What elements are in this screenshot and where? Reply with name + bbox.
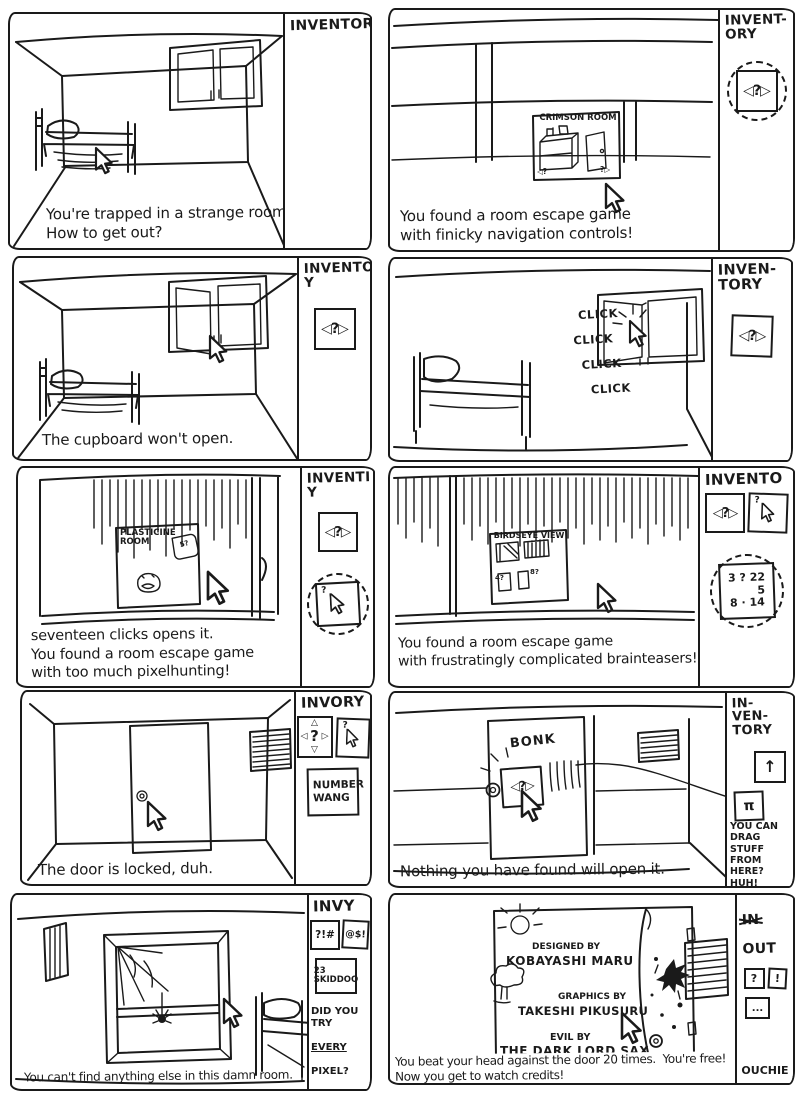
inventory-title: INVENTOR Y [302, 261, 372, 291]
click-text: CLICK CLICK CLICK CLICK [569, 294, 632, 411]
caption: The cupboard won't open. [42, 429, 233, 450]
dragged-item-label: ◁?▷ [504, 778, 541, 794]
screen-title: CRIMSON ROOM [536, 114, 620, 123]
inventory-item-pi[interactable]: π [733, 790, 764, 821]
vent [250, 729, 291, 771]
window-scene [12, 895, 311, 1091]
vent [638, 730, 679, 762]
caption: You're trapped in a strange room. How to… [46, 203, 291, 244]
inventory-sidebar: IN OUT ? ! ... OUCHIE [735, 895, 793, 1083]
inventory-title-in: IN [742, 913, 760, 928]
screen-mark-right: 8? [530, 569, 539, 577]
inventory-item-nav[interactable]: ◁?▷ [730, 314, 773, 357]
inventory-note: YOU CAN DRAG STUFF FROM HERE? HUH! [730, 821, 790, 888]
inventory-item-exclaim[interactable]: ! [767, 968, 787, 990]
inventory-title-out: OUT [742, 940, 776, 957]
inventory-title: INVENT- ORY [723, 13, 788, 42]
bed[interactable] [414, 353, 530, 449]
door-scene [22, 692, 298, 886]
inventory-sidebar: INVENTORY [283, 14, 370, 248]
birdseye-view-screen[interactable] [490, 530, 568, 604]
screen-nav-left[interactable]: ◁? [537, 168, 547, 176]
door-knob [137, 791, 147, 801]
cupboard[interactable] [170, 40, 262, 110]
cursor-icon [598, 584, 615, 612]
inventory-item-symbols-2[interactable]: @$! [341, 920, 369, 950]
spiderweb [118, 947, 168, 1005]
inventory-note: DID YOU TRY EVERY PIXEL? [311, 994, 368, 1091]
inventory-sidebar: INVEN- TORY ◁?▷ [711, 259, 791, 460]
pointer-icon [760, 503, 776, 524]
caption: The door is locked, duh. [38, 859, 213, 880]
inventory-item-nav[interactable]: ◁?▷ [705, 493, 745, 533]
door-scene [390, 693, 729, 888]
vent [44, 923, 68, 981]
cursor-icon [208, 572, 228, 604]
inventory-title: IN- VEN- TORY [729, 696, 772, 737]
inventory-item-cursor[interactable]: ? [335, 717, 370, 758]
room-scene-4 [390, 259, 715, 462]
inventory-sidebar: IN- VEN- TORY ↑ π YOU CAN DRAG STUFF FRO… [725, 693, 793, 886]
credits-line-graphics-by: GRAPHICS BY [558, 993, 626, 1003]
cursor-icon [522, 791, 541, 821]
peeled-door[interactable] [639, 909, 696, 1053]
inventory-item-cursor[interactable]: ? [747, 493, 788, 534]
panel-found-birdseye-view: BIRDSEYE VIEW 4? 8? You found a room esc… [388, 466, 795, 688]
door-knob [650, 1035, 662, 1047]
inventory-item-question[interactable]: ? [744, 968, 765, 989]
credits-line-evil-by: EVIL BY [550, 1033, 590, 1043]
panel-trapped: You're trapped in a strange room. How to… [8, 12, 372, 250]
credits-line-designed-by: DESIGNED BY [532, 943, 600, 953]
panel-found-plasticine-room: PLASTICINE ROOM 5? seventeen clicks open… [16, 466, 375, 688]
inventory-item-nav4[interactable]: △ ◁ ? ▷ ▽ [297, 716, 333, 758]
screen-mark-left: 4? [495, 575, 504, 583]
credits-line-designer: KOBAYASHI MARU [506, 955, 634, 968]
cursor-icon [148, 802, 165, 830]
inventory-item-skiddoo[interactable]: 23 SKIDDOO [315, 958, 357, 994]
cupboard[interactable] [169, 276, 268, 354]
cursor-icon [210, 336, 226, 362]
caption: You found a room escape game with frustr… [398, 632, 698, 671]
bed[interactable] [40, 359, 139, 424]
inventory-item-cursor[interactable]: ? [314, 580, 360, 626]
inventory-item-arrow[interactable]: ↑ [754, 751, 786, 783]
inventory-item-nav[interactable]: ◁?▷ [736, 70, 778, 112]
inventory-sidebar: INVENT- ORY ◁?▷ [718, 10, 793, 250]
comic-page: { "ink": "#1a1a1a", "paper": "#ffffff", … [0, 0, 800, 1094]
inventory-sidebar: INVY ?!# @$! 23 SKIDDOO DID YOU TRY EVER… [307, 895, 370, 1089]
caption: Nothing you have found will open it. [400, 860, 665, 882]
pointer-icon [345, 728, 360, 747]
panel-nothing-opens-it: BONK ◁?▷ Nothing you have found will ope… [388, 691, 795, 888]
caption: You can't find anything else in this dam… [24, 1068, 293, 1086]
vent [685, 939, 728, 999]
caption: You beat your head against the door 20 t… [395, 1051, 726, 1085]
inventory-sidebar: INVENTOR Y ◁?▷ [297, 258, 370, 459]
bonk-burst [481, 748, 508, 771]
caption: You found a room escape game with finick… [400, 205, 633, 246]
credits-line-artist: TAKESHI PIKUSURU [518, 1005, 648, 1018]
inventory-title: INVY [311, 898, 355, 914]
panel-found-crimson-room: CRIMSON ROOM ◁? ?▷ You found a room esca… [388, 8, 795, 252]
inventory-sidebar: INVENTO ◁?▷ ? 3 ? 22 5 8 · 14 [698, 468, 793, 686]
caption: seventeen clicks opens it. You found a r… [31, 625, 255, 683]
inventory-item-nav[interactable]: ◁?▷ [314, 308, 356, 350]
motion-hatches [550, 761, 580, 791]
drag-trajectory [576, 764, 728, 798]
bed-underside [392, 41, 712, 162]
door-handle [262, 558, 266, 580]
pointer-icon [329, 592, 346, 615]
inventory-title: INVORY [299, 695, 365, 711]
screen-title: PLASTICINE ROOM [120, 529, 176, 548]
inventory-item-dots[interactable]: ... [745, 997, 770, 1019]
sun-icon [511, 916, 529, 934]
inventory-footer-ouchie: OUCHIE [741, 1064, 788, 1079]
inventory-item-nav[interactable]: ◁?▷ [318, 512, 358, 552]
panel-credits: DESIGNED BY KOBAYASHI MARU GRAPHICS BY T… [388, 893, 795, 1085]
panel-cupboard-wont-open: The cupboard won't open. INVENTOR Y ◁?▷ [12, 256, 372, 461]
screen-nav-right[interactable]: ?▷ [600, 166, 610, 174]
door[interactable] [130, 723, 211, 853]
cursor-icon [224, 999, 241, 1027]
inventory-sidebar: INVORY △ ◁ ? ▷ ▽ ? NUMBER WANG [294, 692, 370, 884]
panel-door-locked: The door is locked, duh. INVORY △ ◁ ? ▷ … [20, 690, 372, 886]
inventory-title: INVENTORY [288, 17, 372, 34]
screen-title: BIRDSEYE VIEW [491, 532, 567, 541]
inventory-item-symbols-1[interactable]: ?!# [310, 920, 340, 950]
inventory-item-numbers[interactable]: 3 ? 22 5 8 · 14 [718, 562, 776, 620]
inventory-sidebar: INVENTI Y ◁?▷ ? [300, 468, 373, 686]
inventory-item-numberwang[interactable]: NUMBER WANG [307, 767, 360, 816]
inventory-title: INVEN- TORY [716, 262, 777, 293]
inventory-title: INVENTO [703, 471, 783, 488]
panel-nothing-else: You can't find anything else in this dam… [10, 893, 372, 1091]
door-knob [487, 784, 500, 797]
inventory-title: INVENTI Y [305, 471, 371, 500]
panel-click-click: CLICK CLICK CLICK CLICK INVEN- TORY ◁?▷ [388, 257, 793, 462]
